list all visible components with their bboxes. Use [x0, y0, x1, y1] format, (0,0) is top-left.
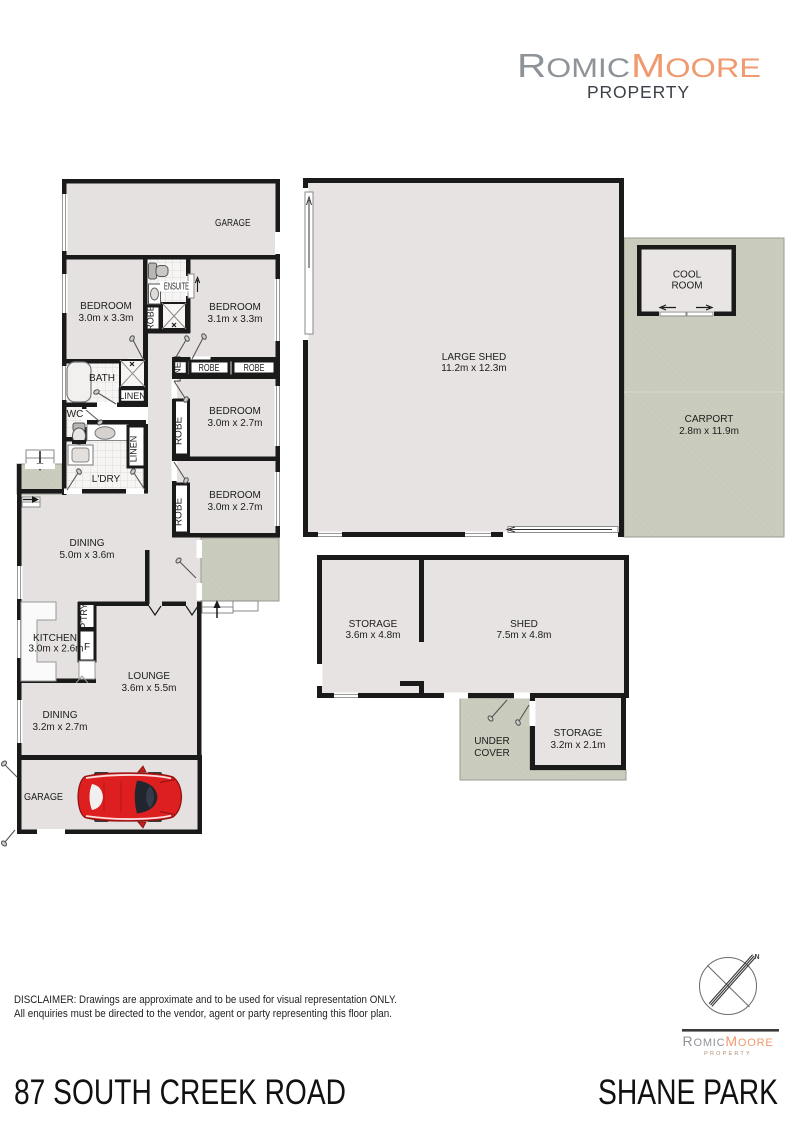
svg-text:PROPERTY: PROPERTY: [704, 1051, 752, 1057]
svg-text:All enquiries must be directed: All enquiries must be directed to the ve…: [14, 1008, 392, 1020]
svg-text:ENSUITE: ENSUITE: [164, 282, 189, 293]
svg-text:ROOM: ROOM: [671, 281, 702, 292]
svg-text:BEDROOM: BEDROOM: [209, 302, 261, 313]
svg-text:STORAGE: STORAGE: [349, 619, 398, 630]
svg-text:BEDROOM: BEDROOM: [80, 301, 132, 312]
svg-text:3.0m x 2.6m: 3.0m x 2.6m: [28, 644, 83, 655]
svg-text:2.8m x 11.9m: 2.8m x 11.9m: [679, 426, 739, 437]
svg-text:F: F: [84, 642, 90, 653]
svg-text:BEDROOM: BEDROOM: [209, 490, 261, 501]
svg-text:3.0m x 2.7m: 3.0m x 2.7m: [207, 502, 262, 513]
svg-text:LINEN: LINEN: [119, 391, 146, 401]
svg-text:L'DRY: L'DRY: [92, 474, 121, 485]
svg-text:LOUNGE: LOUNGE: [128, 671, 171, 682]
svg-text:11.2m x 12.3m: 11.2m x 12.3m: [441, 363, 506, 374]
svg-text:ROBE: ROBE: [174, 417, 185, 446]
svg-text:KITCHEN: KITCHEN: [33, 633, 77, 644]
svg-text:PROPERTY: PROPERTY: [587, 82, 689, 102]
svg-text:BEDROOM: BEDROOM: [209, 406, 261, 417]
svg-text:LINEN: LINEN: [129, 436, 139, 463]
svg-text:SHED: SHED: [510, 619, 538, 630]
svg-text:3.0m x 2.7m: 3.0m x 2.7m: [207, 418, 262, 429]
svg-text:WC: WC: [67, 409, 84, 420]
svg-text:DINING: DINING: [43, 710, 78, 721]
svg-text:3.0m x 3.3m: 3.0m x 3.3m: [78, 313, 133, 324]
svg-text:GARAGE: GARAGE: [24, 792, 63, 803]
svg-text:ROBE: ROBE: [199, 363, 220, 374]
svg-text:ROMIC: ROMIC: [517, 48, 630, 85]
svg-text:BATH: BATH: [89, 373, 115, 384]
svg-text:3.6m x 4.8m: 3.6m x 4.8m: [345, 630, 400, 641]
svg-text:3.6m x 5.5m: 3.6m x 5.5m: [121, 683, 176, 694]
svg-text:7.5m x 4.8m: 7.5m x 4.8m: [496, 630, 551, 641]
svg-text:UNDER: UNDER: [474, 736, 510, 747]
svg-text:LARGE SHED: LARGE SHED: [442, 352, 506, 363]
svg-text:GARAGE: GARAGE: [215, 218, 251, 229]
svg-text:SHANE PARK: SHANE PARK: [598, 1073, 778, 1112]
svg-text:N: N: [755, 954, 760, 961]
svg-text:CARPORT: CARPORT: [685, 414, 734, 425]
svg-text:P'TRY: P'TRY: [79, 603, 89, 629]
svg-text:COVER: COVER: [474, 748, 510, 759]
svg-text:MOORE: MOORE: [631, 48, 761, 85]
svg-text:STORAGE: STORAGE: [554, 728, 603, 739]
svg-text:ROBE: ROBE: [174, 498, 185, 527]
svg-text:DINING: DINING: [70, 538, 105, 549]
svg-text:ROBE: ROBE: [244, 363, 265, 374]
svg-text:ROBE: ROBE: [146, 305, 156, 331]
svg-text:3.2m x 2.7m: 3.2m x 2.7m: [32, 722, 87, 733]
svg-text:DISCLAIMER: Drawings are appro: DISCLAIMER: Drawings are approximate and…: [14, 994, 397, 1006]
svg-text:5.0m x 3.6m: 5.0m x 3.6m: [59, 550, 114, 561]
svg-text:COOL: COOL: [673, 270, 702, 281]
svg-text:87 SOUTH CREEK ROAD: 87 SOUTH CREEK ROAD: [14, 1073, 346, 1112]
svg-text:3.1m x 3.3m: 3.1m x 3.3m: [207, 314, 262, 325]
svg-text:3.2m x 2.1m: 3.2m x 2.1m: [550, 740, 605, 751]
svg-text:LINEN: LINEN: [173, 356, 183, 383]
